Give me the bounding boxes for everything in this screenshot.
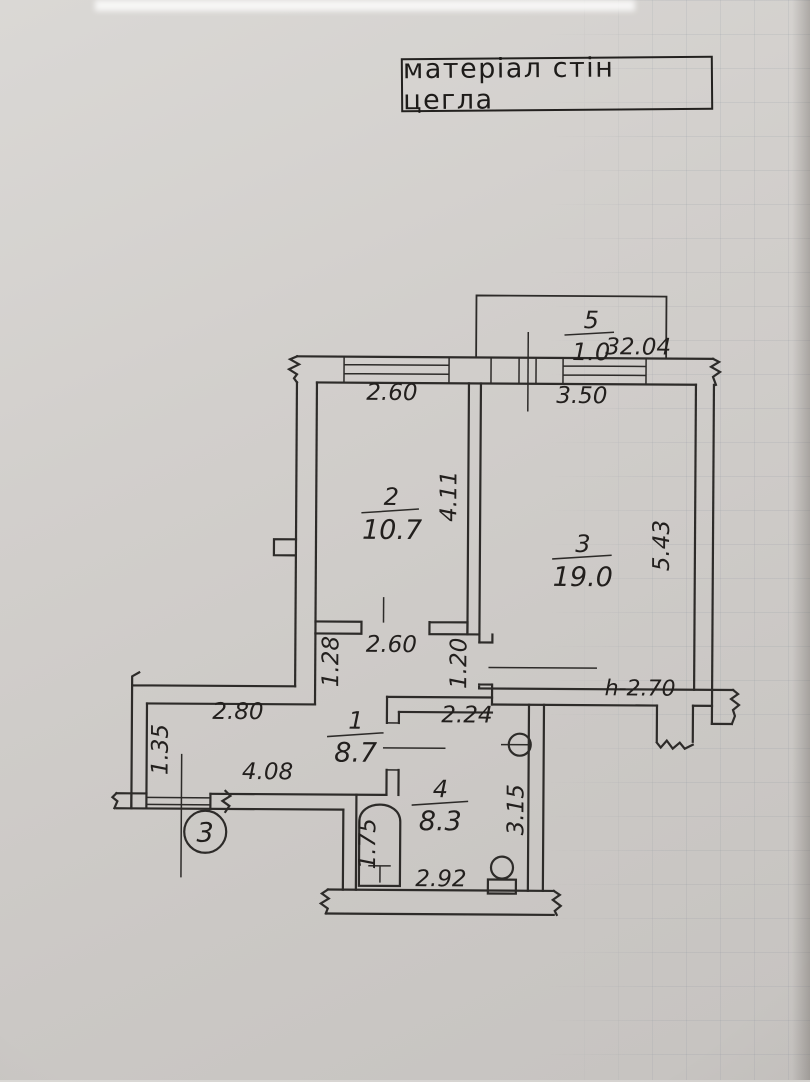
room4-right-wall: [528, 705, 544, 891]
room3-bottom-wall-inner: [492, 705, 712, 706]
room1-area: 8.7: [334, 738, 377, 769]
dim-room2-depth: 4.11: [436, 471, 462, 522]
section-line-entry: [181, 755, 182, 877]
bottom-wall: [328, 890, 554, 915]
left-wall-inner: [315, 382, 317, 704]
section-marker-number: 3: [197, 818, 214, 849]
dim-room4-top-width: 2.24: [441, 702, 492, 728]
partition-room2-room3: [467, 383, 481, 642]
dim-corridor-top: 2.80: [212, 699, 263, 725]
room4-area: 8.3: [419, 806, 462, 837]
room5-number: 5: [584, 306, 599, 334]
corridor-bottom-wall: [116, 793, 386, 810]
balcony-door-and-window: [491, 358, 646, 385]
left-wall-notch: [274, 539, 296, 555]
room4-left-wall: [386, 697, 399, 795]
floor-plan-drawing: 3 5 1.0 2 10.7 3 19.0 1 8.7 4 8.3 32.04 …: [0, 0, 810, 1082]
dim-room2-width: 2.60: [366, 380, 417, 406]
dim-room4-bottom-width: 2.92: [415, 866, 466, 892]
room2-area: 10.7: [362, 515, 422, 546]
toilet-tank: [491, 857, 513, 879]
ceiling-height-label: h-2.70: [605, 676, 676, 701]
entry-door-leaf: [146, 797, 210, 804]
dim-room3-depth: 5.43: [649, 520, 675, 571]
room1-number: 1: [348, 707, 363, 735]
wall-break-bottom-left: [321, 889, 329, 913]
dim-corridor-left: 1.35: [148, 724, 174, 775]
room4-door-jambs: [387, 723, 399, 770]
right-wall-outer: [712, 385, 714, 724]
entry-door-jambs: [146, 793, 210, 808]
total-area-label: 32.04: [605, 334, 671, 360]
wall-break-bottom-right: [553, 891, 561, 915]
wall-break-top-right: [711, 359, 720, 385]
dim-hall-width: 2.60: [366, 632, 417, 658]
dimension-labels: 2.60 3.50 4.11 5.43 2.60 1.28 1.20 2.80 …: [147, 378, 676, 893]
dim-room3-width: 3.50: [556, 383, 607, 409]
corridor-left-wall: [131, 685, 147, 808]
right-wall-inner: [694, 385, 696, 690]
right-stub: [712, 690, 739, 724]
leader-room3-door: [489, 668, 596, 669]
dim-corridor-length: 4.08: [242, 759, 293, 785]
room3-number: 3: [575, 530, 590, 558]
left-wall-outer: [295, 382, 297, 686]
entrance-marker: 3: [184, 811, 226, 853]
scanned-floor-plan-page: { "title_box": { "label": "матеріал стін…: [0, 0, 810, 1080]
room2-number: 2: [384, 483, 399, 511]
room4-number: 4: [433, 775, 448, 803]
section-lines: [181, 331, 598, 880]
down-stub: [657, 706, 693, 749]
dim-bathtub-length: 1.75: [355, 818, 381, 869]
wall-break-top-left: [289, 356, 299, 382]
dim-hall-wall-left: 1.28: [318, 636, 344, 687]
partition-room1-room3: [479, 634, 492, 704]
room3-area: 19.0: [553, 562, 613, 593]
wall-break-entry-left: [112, 793, 117, 808]
dim-room4-depth: 3.15: [503, 784, 529, 835]
dim-room3-door: 1.20: [446, 638, 472, 689]
